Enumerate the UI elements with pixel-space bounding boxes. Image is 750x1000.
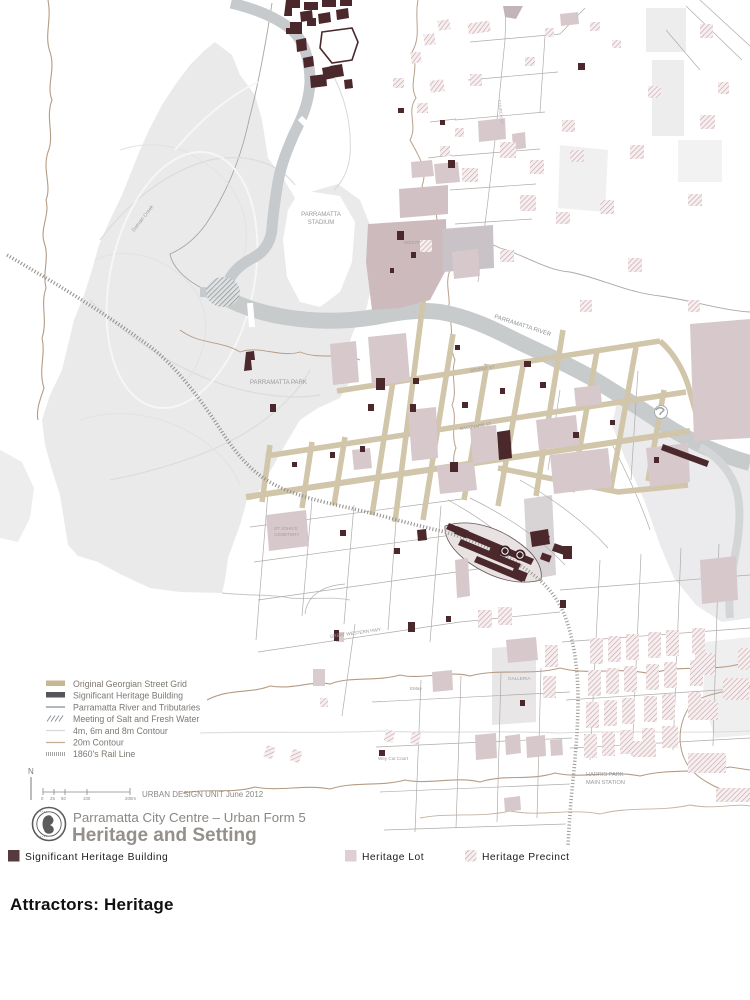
svg-text:4m, 6m and 8m Contour: 4m, 6m and 8m Contour <box>73 726 168 736</box>
svg-text:URBAN DESIGN UNIT June 2012: URBAN DESIGN UNIT June 2012 <box>142 790 264 799</box>
svg-text:200m: 200m <box>125 796 136 801</box>
svg-text:WESTF: WESTF <box>404 240 420 245</box>
svg-text:Original Georgian Street Grid: Original Georgian Street Grid <box>73 679 187 689</box>
svg-text:PARRAMATTA PARK: PARRAMATTA PARK <box>250 380 307 386</box>
svg-text:1860's Rail Line: 1860's Rail Line <box>73 749 135 759</box>
svg-text:Significant Heritage Building: Significant Heritage Building <box>73 691 183 701</box>
svg-text:EMay: EMay <box>410 686 422 691</box>
svg-text:100: 100 <box>83 796 91 801</box>
svg-text:25: 25 <box>50 796 55 801</box>
svg-text:Wey Cut Court: Wey Cut Court <box>378 756 409 761</box>
svg-text:Attractors: Heritage: Attractors: Heritage <box>10 895 174 914</box>
svg-text:Meeting of Salt and Fresh Wate: Meeting of Salt and Fresh Water <box>73 714 199 724</box>
svg-text:N: N <box>28 767 34 776</box>
svg-text:Parramatta City Centre – Urban: Parramatta City Centre – Urban Form 5 <box>73 810 306 825</box>
svg-text:STADIUM: STADIUM <box>308 220 335 226</box>
svg-text:MAIN STATION: MAIN STATION <box>586 780 625 786</box>
svg-text:Heritage Lot: Heritage Lot <box>362 852 424 863</box>
svg-text:Parramatta River and Tributari: Parramatta River and Tributaries <box>73 702 201 712</box>
svg-text:Heritage and Setting: Heritage and Setting <box>72 825 257 846</box>
svg-text:50: 50 <box>61 796 66 801</box>
svg-text:* * * *: * * * * <box>40 835 48 839</box>
svg-text:CEMETERY: CEMETERY <box>274 532 299 537</box>
svg-text:Significant Heritage Building: Significant Heritage Building <box>25 852 168 863</box>
svg-text:GALLERIA: GALLERIA <box>508 676 531 681</box>
svg-text:Heritage Precinct: Heritage Precinct <box>482 852 569 863</box>
svg-text:ST JOHN'S: ST JOHN'S <box>274 526 298 531</box>
svg-text:* * * *: * * * * <box>40 810 48 814</box>
svg-text:HARRIS PARK: HARRIS PARK <box>586 772 624 778</box>
svg-text:20m Contour: 20m Contour <box>73 738 124 748</box>
svg-text:PARRAMATTA: PARRAMATTA <box>301 212 341 218</box>
